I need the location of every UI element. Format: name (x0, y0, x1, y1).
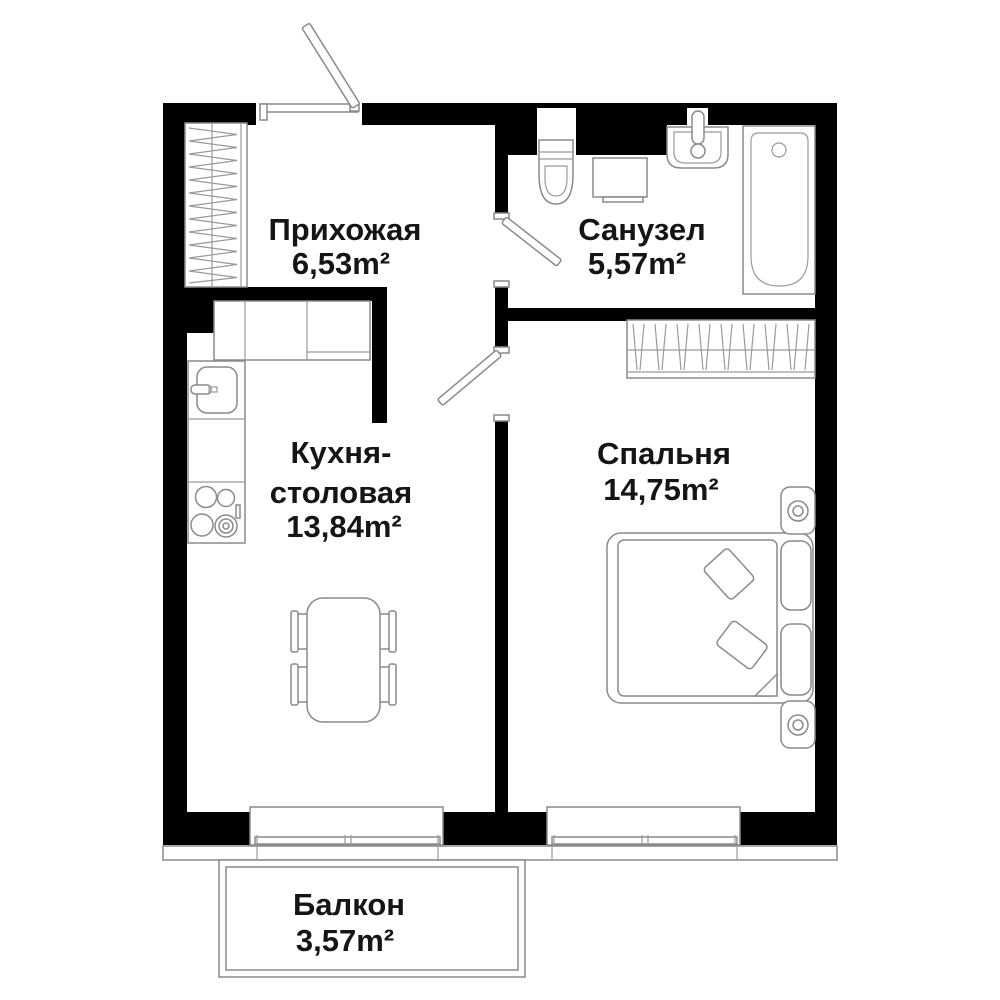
bathtub-outer (743, 126, 815, 294)
bedroom-label: Спальня (597, 436, 731, 471)
bed-mattress (618, 540, 777, 696)
nightstand (781, 487, 815, 534)
wall-right (815, 103, 837, 845)
bathroom-door-leaf (502, 217, 562, 266)
chair (291, 611, 308, 652)
chair-back (291, 611, 298, 652)
bedroom-wardrobe (627, 320, 815, 378)
floor-plan: Прихожая 6,53m² Санузел 5,57m² Кухня- ст… (0, 0, 1000, 1000)
washing-machine-body (593, 158, 647, 197)
facade-ledge (163, 846, 837, 860)
nightstand-body (781, 487, 815, 534)
wall-partition-segment (495, 421, 508, 845)
bathroom-door (494, 213, 562, 287)
balcony-area: 3,57m² (296, 923, 394, 958)
wall-partition-segment (495, 155, 508, 219)
window-glazing (255, 837, 440, 844)
bathroom-area: 5,57m² (588, 246, 686, 281)
kitchen-label-line2: столовая (270, 475, 412, 510)
sink-drain (691, 144, 705, 158)
washing-machine-base (603, 197, 643, 202)
bedroom-door (437, 347, 509, 421)
floor-plan-canvas: Прихожая 6,53m² Санузел 5,57m² Кухня- ст… (0, 0, 1000, 1000)
chair-back (389, 664, 396, 705)
wall-hall-kitchen-v (372, 287, 387, 423)
entrance-door-leaf (302, 23, 360, 108)
wall-kitchen-stub (187, 301, 214, 333)
chair-back (389, 611, 396, 652)
chair (291, 664, 308, 705)
bathroom-label: Санузел (578, 212, 706, 247)
chair (379, 611, 396, 652)
counter-top-row (214, 301, 370, 360)
kitchen-sink-faucet (191, 385, 211, 394)
kitchen-sink (191, 367, 237, 413)
wall-hall-kitchen-h (163, 287, 387, 301)
chair (379, 664, 396, 705)
hallway-wardrobe (185, 123, 247, 287)
wall-bottom-right (740, 812, 837, 845)
balcony-label: Балкон (293, 887, 405, 922)
bed (607, 533, 813, 703)
dining-table (307, 598, 380, 722)
wall-bottom-left (163, 812, 250, 845)
ledge-strip (163, 846, 837, 860)
wall-partition-segment (495, 286, 508, 353)
bedroom-door-leaf (437, 350, 501, 406)
wall-left (163, 103, 187, 845)
nightstand (781, 701, 815, 748)
bedroom-area: 14,75m² (603, 472, 718, 507)
kitchen-area: 13,84m² (286, 509, 401, 544)
bedroom-window (547, 807, 740, 846)
kitchen-label-line1: Кухня- (291, 435, 392, 470)
entrance-door (260, 23, 360, 120)
bathroom-door-jamb (494, 281, 509, 287)
sink-faucet (692, 111, 704, 144)
dining-set (291, 598, 396, 722)
chair-back (291, 664, 298, 705)
hallway-area: 6,53m² (292, 246, 390, 281)
wall-bathroom-block (495, 103, 667, 155)
toilet (539, 140, 573, 204)
headboard-cushion (781, 541, 811, 610)
bedroom-door-jamb (494, 415, 509, 421)
bathtub (743, 126, 815, 294)
kitchen-window (250, 807, 443, 846)
entrance-threshold (260, 104, 358, 112)
washing-machine (593, 158, 647, 202)
stove-handle (236, 505, 240, 518)
toilet-body (539, 140, 573, 204)
entrance-jamb-left (260, 104, 267, 120)
nightstand-body (781, 701, 815, 748)
hallway-label: Прихожая (269, 212, 422, 247)
headboard-cushion (781, 624, 811, 695)
window-glazing (552, 837, 737, 844)
wall-bath-bedroom (508, 308, 815, 321)
